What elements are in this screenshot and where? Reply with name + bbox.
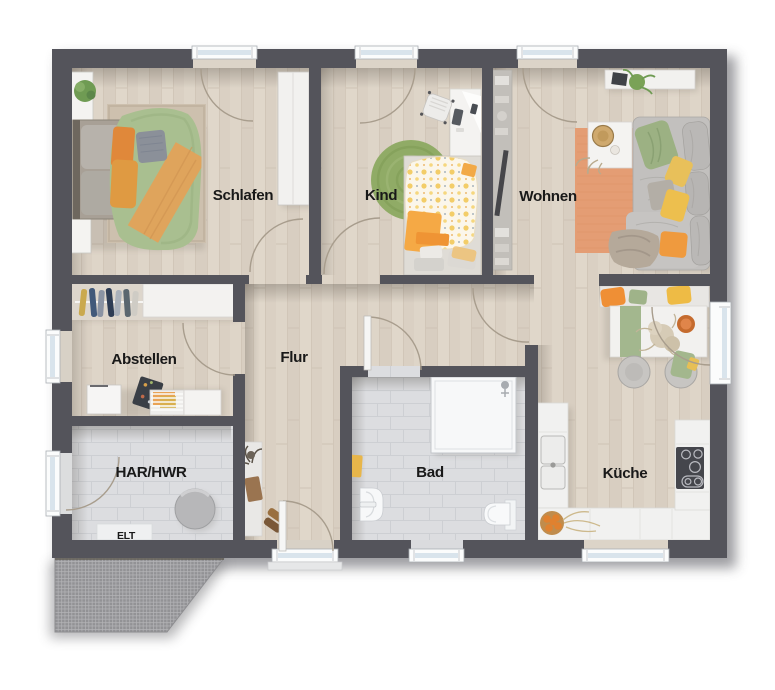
svg-text:ELT: ELT [117, 530, 136, 542]
svg-text:Flur: Flur [280, 349, 308, 366]
svg-text:Wohnen: Wohnen [519, 188, 577, 205]
svg-text:Küche: Küche [603, 465, 648, 482]
svg-text:HAR/HWR: HAR/HWR [116, 464, 187, 481]
svg-text:Abstellen: Abstellen [111, 351, 176, 368]
svg-text:Schlafen: Schlafen [213, 187, 274, 204]
svg-text:Kind: Kind [365, 187, 397, 204]
svg-text:Bad: Bad [416, 464, 444, 481]
